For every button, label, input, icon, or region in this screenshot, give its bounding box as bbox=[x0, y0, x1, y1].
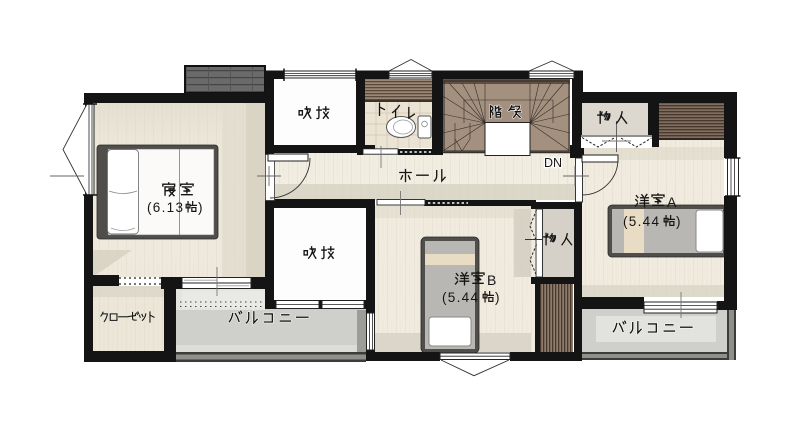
svg-text:B: B bbox=[487, 272, 496, 288]
svg-text:(5.44: (5.44 bbox=[442, 290, 479, 305]
svg-text:(5.44: (5.44 bbox=[623, 214, 660, 229]
svg-text:): ) bbox=[676, 214, 681, 229]
svg-text:A: A bbox=[667, 194, 677, 210]
svg-text:): ) bbox=[495, 290, 500, 305]
svg-text:DN: DN bbox=[544, 156, 562, 170]
svg-text:): ) bbox=[198, 200, 203, 215]
svg-text:(6.13: (6.13 bbox=[147, 200, 184, 215]
